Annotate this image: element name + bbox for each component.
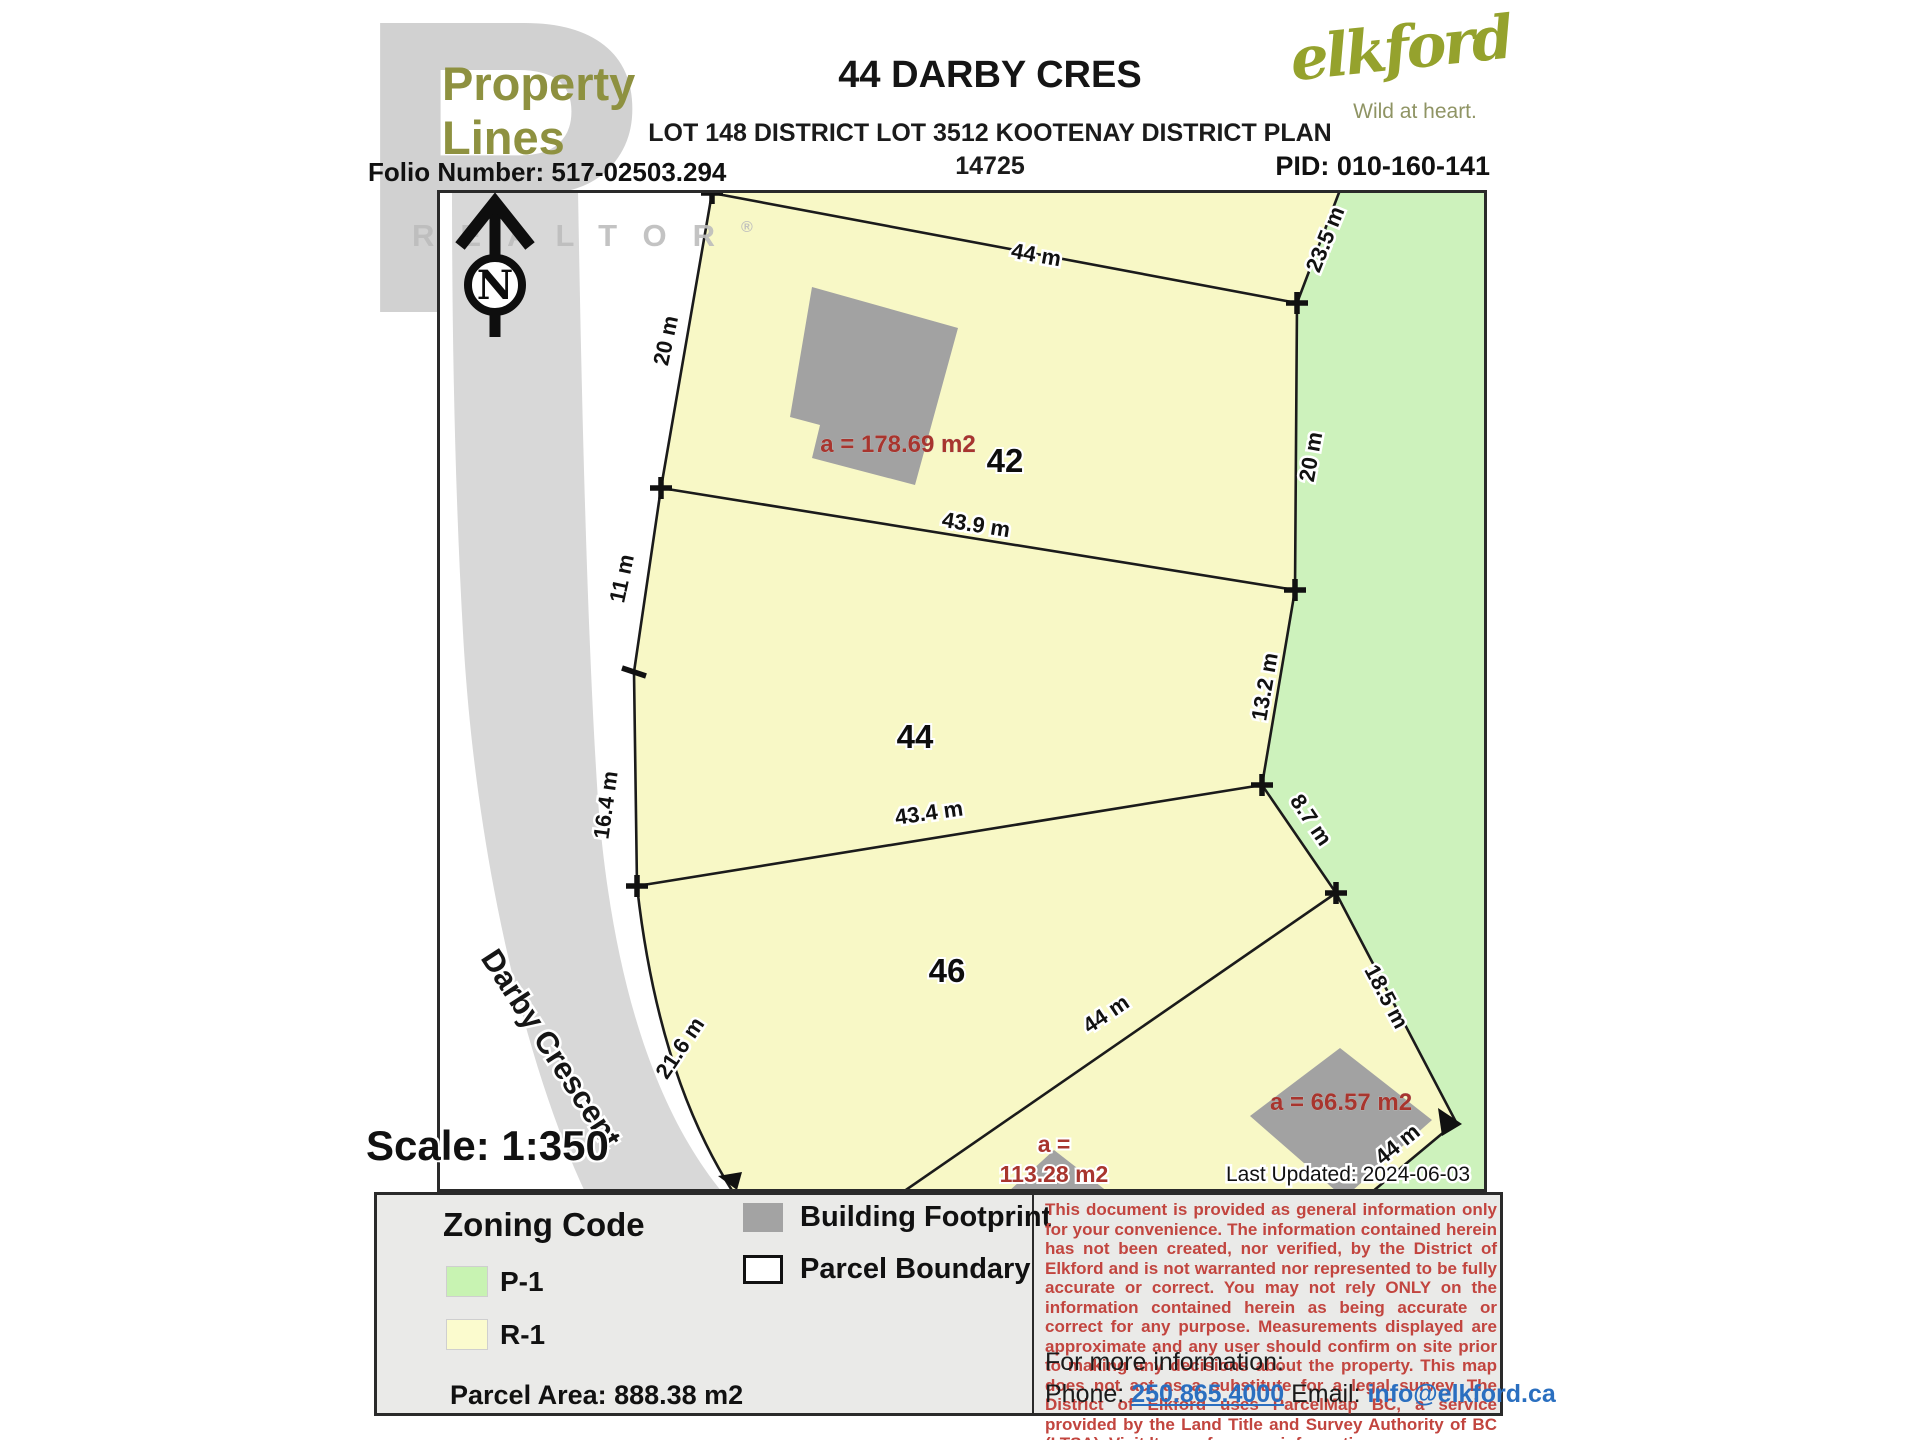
more-info-heading: For more information:: [1045, 1348, 1284, 1377]
page-title: 44 DARBY CRES: [640, 54, 1340, 97]
elkford-logo: elkford: [1287, 3, 1513, 96]
north-arrow-icon: N: [448, 192, 548, 347]
zone-r1-label: R-1: [500, 1319, 545, 1351]
registered-mark-icon: ®: [741, 219, 753, 236]
parcel-boundary-label: Parcel Boundary: [800, 1253, 1030, 1286]
area-label-bottom-line1: a =: [1038, 1131, 1071, 1157]
phone-label: Phone:: [1045, 1380, 1131, 1408]
email-label: Email:: [1284, 1380, 1367, 1408]
phone-link[interactable]: 250.865.4000: [1131, 1380, 1284, 1408]
parcel-boundary-swatch: [743, 1255, 783, 1284]
contact-line: Phone: 250.865.4000 Email: info@elkford.…: [1045, 1380, 1556, 1409]
zone-p1-swatch: [446, 1266, 488, 1297]
pid-number: PID: 010-160-141: [1190, 151, 1490, 182]
folio-number: Folio Number: 517-02503.294: [368, 157, 726, 188]
email-link[interactable]: info@elkford.ca: [1367, 1380, 1555, 1408]
scale-label: Scale: 1:350: [366, 1122, 609, 1170]
area-label-bottom-line2: 113.28 m2: [1000, 1161, 1109, 1187]
zone-r1-swatch: [446, 1319, 488, 1350]
last-updated: Last Updated: 2024-06-03: [1226, 1163, 1470, 1186]
page: R REALTOR® Property Lines 44 DARBY CRES …: [0, 0, 1920, 1440]
zoning-code-title: Zoning Code: [443, 1206, 645, 1244]
parcel-label-42: 42: [987, 442, 1024, 479]
elkford-tagline: Wild at heart.: [1340, 100, 1490, 124]
legal-description: LOT 148 DISTRICT LOT 3512 KOOTENAY DISTR…: [590, 119, 1390, 148]
parcel-map: 44 m 23.5 m 20 m 20 m 43.9 m 11 m 16.4 m…: [437, 190, 1487, 1192]
parcel-label-44: 44: [897, 718, 934, 755]
zone-p1-label: P-1: [500, 1266, 544, 1298]
north-letter: N: [477, 262, 514, 309]
property-lines-logo-line1: Property: [442, 56, 635, 111]
area-label-lot42: a = 178.69 m2: [820, 431, 975, 458]
parcel-area: Parcel Area: 888.38 m2: [450, 1380, 743, 1411]
area-label-lot46: a = 66.57 m2: [1270, 1089, 1412, 1116]
building-footprint-swatch: [743, 1203, 783, 1232]
parcel-label-46: 46: [929, 952, 966, 989]
building-footprint-label: Building Footprint: [800, 1201, 1051, 1234]
